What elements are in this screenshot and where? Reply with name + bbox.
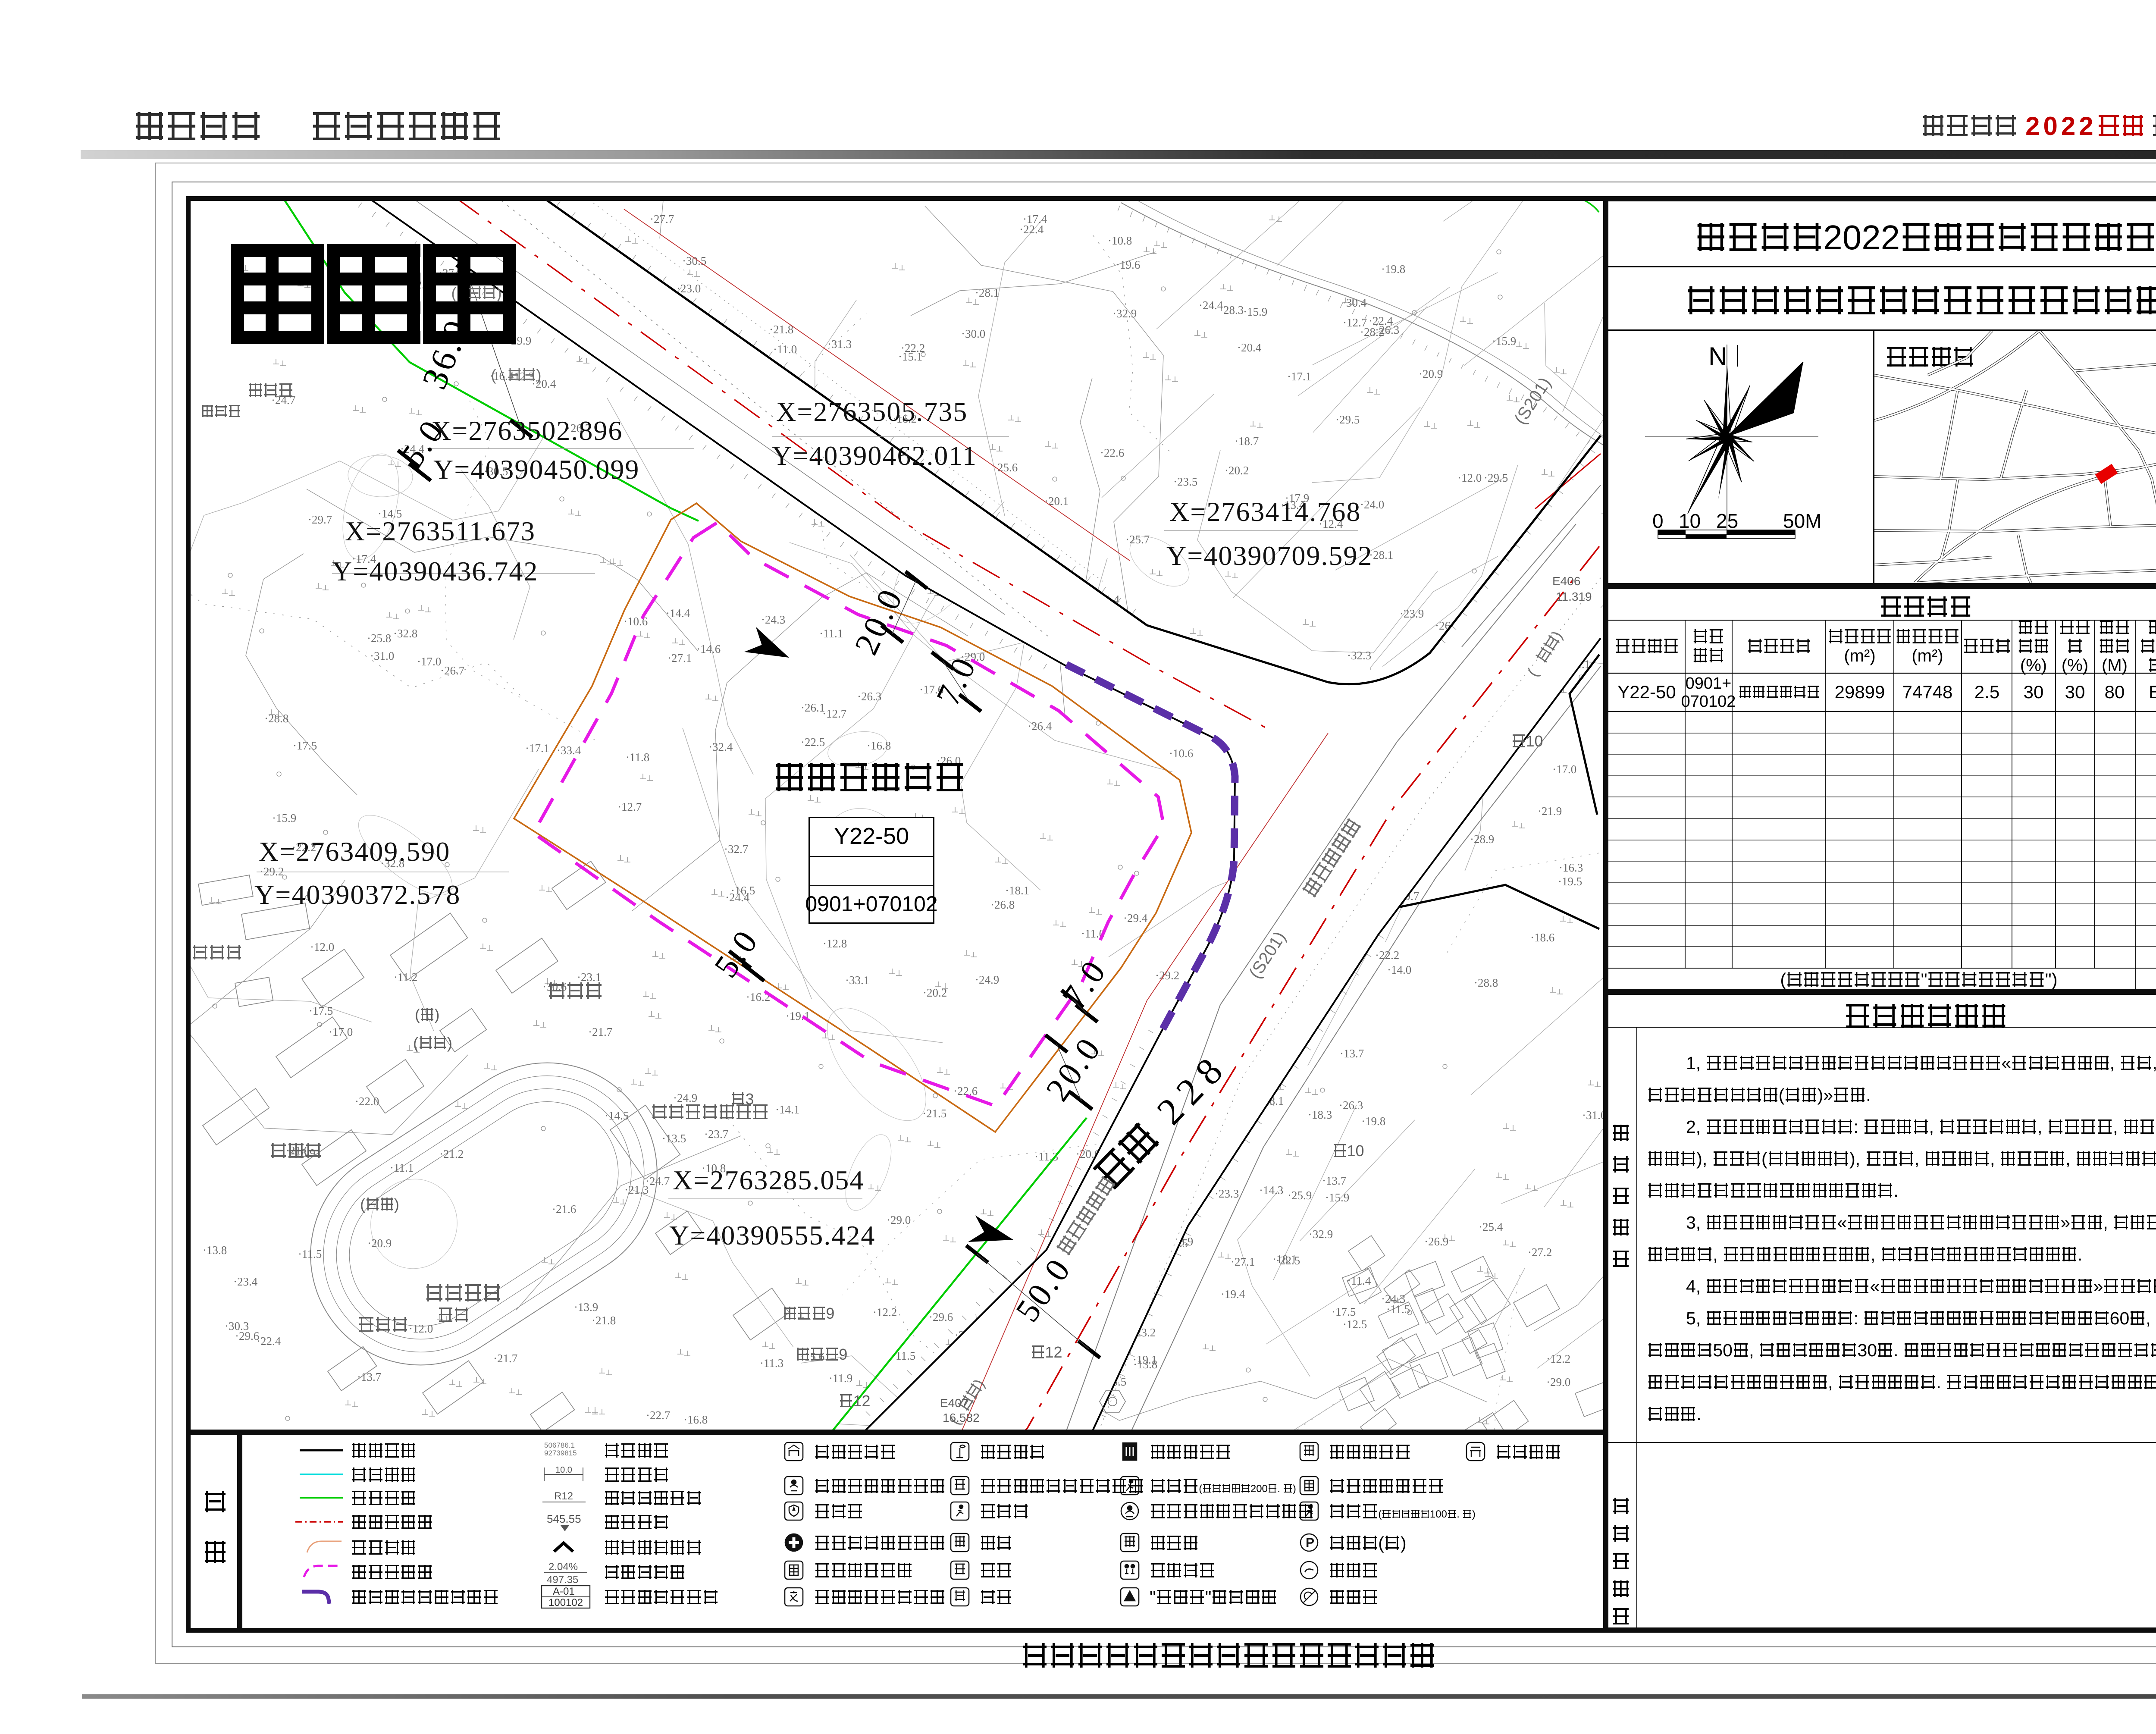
svg-text:R12: R12 — [554, 1490, 573, 1502]
svg-text:506786.1: 506786.1 — [544, 1441, 575, 1449]
svg-text:P: P — [1306, 1536, 1314, 1550]
svg-text:2.04%: 2.04% — [548, 1561, 578, 1573]
svg-text:A-01: A-01 — [553, 1586, 575, 1597]
svg-text:10.0: 10.0 — [555, 1465, 572, 1475]
svg-text:545.55: 545.55 — [547, 1512, 581, 1525]
svg-text:497.35: 497.35 — [547, 1574, 578, 1586]
svg-text:100102: 100102 — [548, 1597, 583, 1609]
svg-text:92739815: 92739815 — [544, 1449, 577, 1457]
